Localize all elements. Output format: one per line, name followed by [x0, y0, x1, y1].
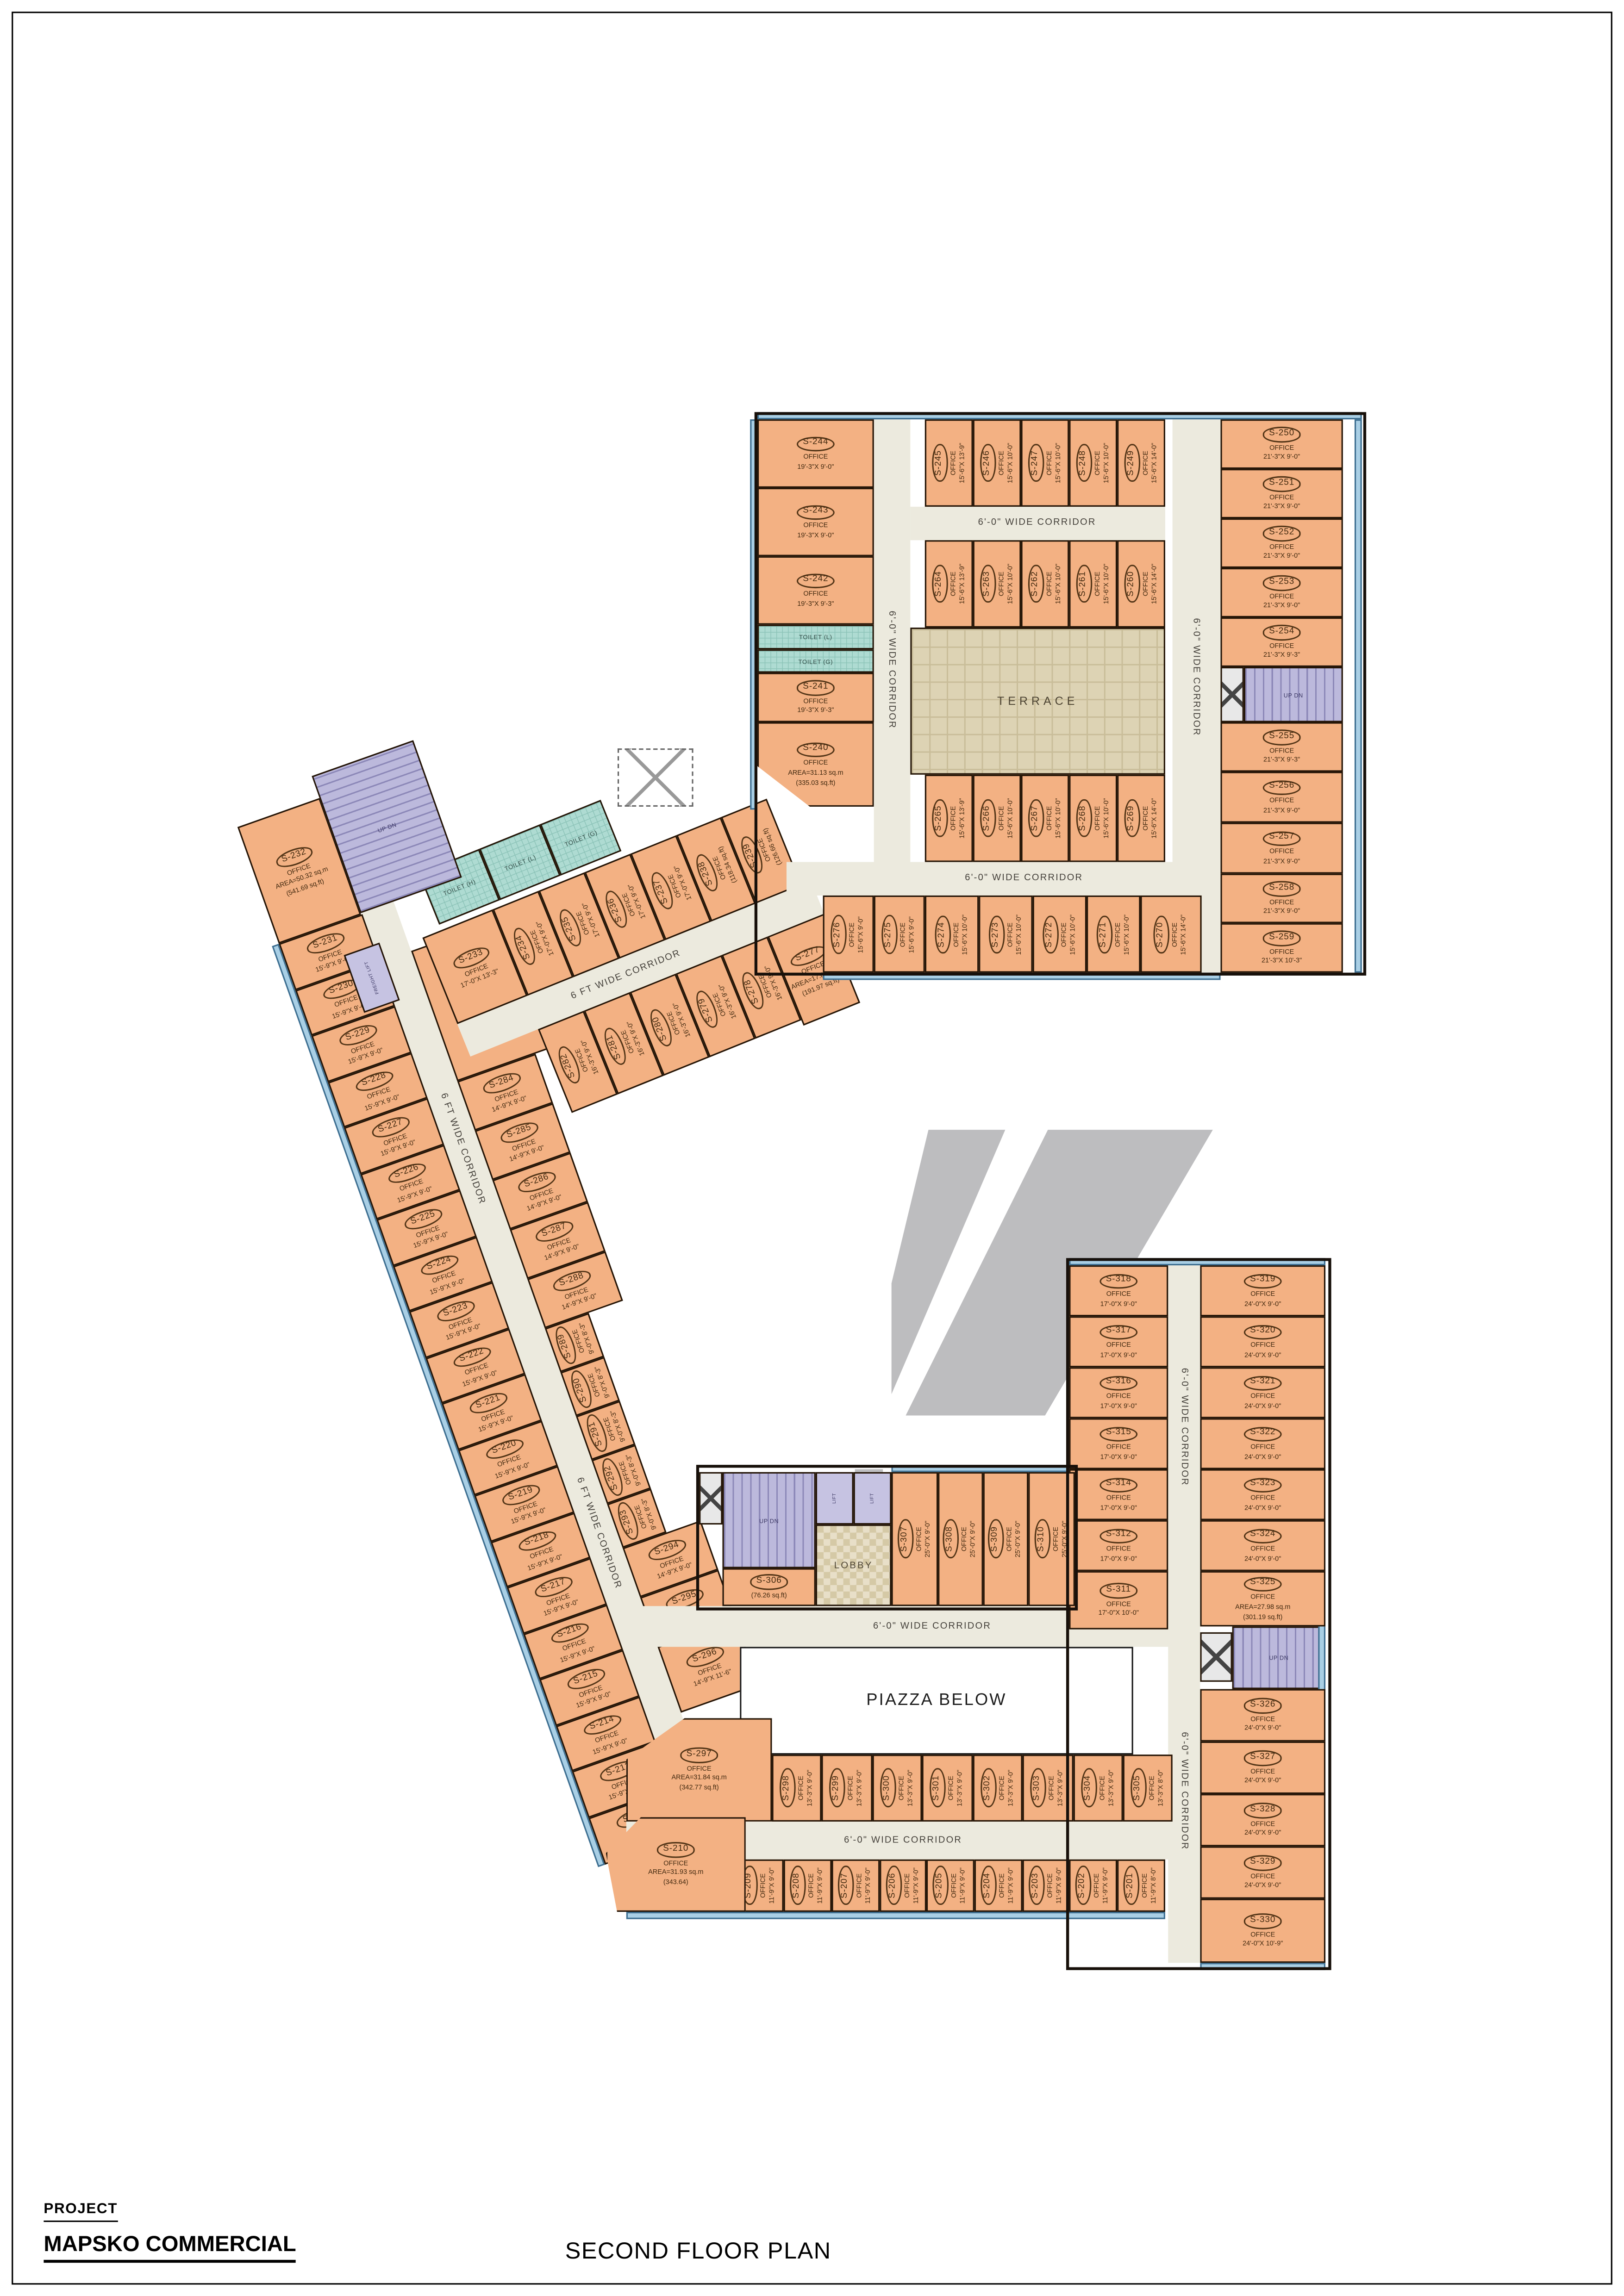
room-use: OFFICE — [948, 572, 956, 596]
room-use: OFFICE — [997, 1776, 1006, 1800]
room-s-247: S-247OFFICE15'-6"X 10'-0" — [1021, 419, 1069, 507]
room-use: OFFICE — [996, 451, 1005, 475]
room-number: S-301 — [930, 1769, 945, 1807]
room-s-301: S-301OFFICE13'-3"X 9'-0" — [922, 1755, 973, 1822]
room-dim: 13'-3"X 9'-0" — [806, 1770, 814, 1806]
room-use: OFFICE — [951, 922, 960, 946]
room-number: S-254 — [1262, 625, 1301, 640]
room-s-304: S-304OFFICE13'-3"X 9'-0" — [1074, 1755, 1123, 1822]
room-use: OFFICE — [1141, 572, 1149, 596]
toilet-l-west-label: TOILET (L) — [503, 852, 537, 871]
room-dim: 17'-0"X 9'-0" — [1100, 1504, 1137, 1512]
room-s-256: S-256OFFICE21'-3"X 9'-0" — [1221, 772, 1343, 822]
room-s-251: S-251OFFICE21'-3"X 9'-0" — [1221, 469, 1343, 518]
room-label-s-261: S-261OFFICE15'-6"X 10'-0" — [1076, 564, 1111, 604]
room-dim: 15'-6"X 13'-9" — [958, 443, 966, 483]
room-dim: 15'-6"X 9'-0" — [908, 916, 917, 952]
stair-southeast-label: UP DN — [1269, 1654, 1288, 1661]
room-label-s-262: S-262OFFICE15'-6"X 10'-0" — [1028, 564, 1062, 604]
room-s-252: S-252OFFICE21'-3"X 9'-0" — [1221, 518, 1343, 568]
room-dim: 11'-9"X 9'-0" — [817, 1867, 825, 1904]
toilet-g-north-label: TOILET (G) — [799, 658, 833, 665]
room-label-s-329: S-329OFFICE24'-0"X 9'-0" — [1243, 1855, 1282, 1890]
room-dim: 24'-0"X 9'-0" — [1244, 1777, 1281, 1785]
room-use: OFFICE — [848, 922, 856, 946]
room-s-318: S-318OFFICE17'-0"X 9'-0" — [1069, 1265, 1168, 1316]
room-use: OFFICE — [1106, 1392, 1131, 1400]
room-label-s-241: S-241OFFICE19'-3"X 9'-3" — [796, 680, 835, 715]
room-dim: 11'-9"X 9'-0" — [960, 1867, 968, 1904]
room-s-315: S-315OFFICE17'-0"X 9'-0" — [1069, 1418, 1168, 1469]
toilet-l-north-label: TOILET (L) — [799, 634, 832, 641]
room-number: S-261 — [1076, 565, 1091, 603]
room-dim: 24'-0"X 10'-9" — [1243, 1940, 1283, 1948]
room-label-s-238: S-238OFFICE(118.34 sq.ft) — [693, 845, 739, 894]
room-label-s-310: S-310OFFICE25'-0"X 9'-0" — [1034, 1520, 1069, 1558]
room-label-s-220: S-220OFFICE15'-9"X 9'-0" — [484, 1435, 532, 1481]
room-s-257: S-257OFFICE21'-3"X 9'-0" — [1221, 823, 1343, 874]
room-dim: 11'-9"X 8'-0" — [1150, 1867, 1159, 1904]
room-dim: 11'-9"X 9'-0" — [1007, 1867, 1016, 1904]
room-use: OFFICE — [1113, 922, 1121, 946]
room-dim: 25'-0"X 9'-0" — [970, 1521, 978, 1557]
room-dim: 11'-9"X 9'-0" — [1102, 1867, 1111, 1904]
room-label-s-303: S-303OFFICE13'-3"X 9'-0" — [1031, 1769, 1065, 1807]
room-label-s-306: S-306(76.26 sq.ft) — [750, 1574, 788, 1599]
room-label-s-208: S-208OFFICE11'-9"X 9'-0" — [790, 1867, 825, 1905]
room-s-259: S-259OFFICE21'-3"X 10'-3" — [1221, 923, 1343, 973]
glazing-south-east — [1200, 1963, 1325, 1970]
room-s-265: S-265OFFICE15'-6"X 13'-9" — [925, 775, 973, 862]
room-use: OFFICE — [1269, 592, 1294, 600]
room-s-205: S-205OFFICE11'-9"X 9'-0" — [926, 1860, 974, 1912]
room-label-s-287: S-287OFFICE14'-9"X 9'-0" — [534, 1218, 582, 1263]
room-number: S-265 — [931, 799, 947, 837]
glazing-west-upper — [750, 419, 757, 809]
room-number: S-255 — [1262, 729, 1301, 745]
room-label-s-234: S-234OFFICE17'-0"X 9'-0" — [510, 919, 556, 968]
room-number: S-252 — [1262, 526, 1301, 541]
lift-1: LIFT — [816, 1472, 854, 1524]
room-number: S-249 — [1124, 444, 1139, 482]
room-label-s-203: S-203OFFICE11'-9"X 9'-0" — [1028, 1867, 1063, 1905]
corridor-label: 6'-0" WIDE CORRIDOR — [1191, 618, 1201, 736]
room-number: S-325 — [1243, 1576, 1282, 1592]
room-dim: 24'-0"X 9'-0" — [1244, 1351, 1281, 1359]
room-label-s-255: S-255OFFICE21'-3"X 9'-3" — [1262, 729, 1301, 764]
room-label-s-245: S-245OFFICE15'-6"X 13'-9" — [931, 443, 966, 483]
room-dim: 15'-6"X 10'-0" — [1054, 443, 1062, 483]
room-label-s-252: S-252OFFICE21'-3"X 9'-0" — [1262, 526, 1301, 560]
room-number: S-203 — [1028, 1867, 1043, 1905]
room-use: OFFICE — [996, 572, 1005, 596]
stair-east: UP DN — [1244, 667, 1343, 722]
glazing-north-lower — [1069, 1258, 1325, 1265]
room-use: OFFICE — [1106, 1290, 1131, 1299]
room-number: S-298 — [779, 1769, 794, 1807]
corridor-label: 6'-0" WIDE CORRIDOR — [886, 611, 896, 729]
room-number: S-271 — [1096, 915, 1112, 953]
room-number: S-305 — [1130, 1769, 1145, 1807]
room-label-s-321: S-321OFFICE24'-0"X 9'-0" — [1243, 1375, 1282, 1410]
piazza-below: PIAZZA BELOW — [740, 1647, 1133, 1755]
room-label-s-226: S-226OFFICE15'-9"X 9'-0" — [386, 1159, 434, 1205]
room-number: S-260 — [1124, 565, 1139, 603]
room-s-302: S-302OFFICE13'-3"X 9'-0" — [973, 1755, 1023, 1822]
room-use: OFFICE — [897, 1776, 905, 1800]
room-label-s-280: S-280OFFICE16'-3"X 9'-0" — [646, 1000, 693, 1049]
room-s-275: S-275OFFICE15'-6"X 9'-0" — [874, 896, 925, 973]
room-use: OFFICE — [1269, 947, 1294, 956]
room-s-274: S-274OFFICE15'-6"X 10'-0" — [925, 896, 979, 973]
room-use: OFFICE — [796, 1776, 804, 1800]
room-dim: 25'-0"X 9'-0" — [1015, 1521, 1023, 1557]
room-label-s-231: S-231OFFICE15'-9"X 9'-0" — [305, 929, 353, 975]
room-label-s-224: S-224OFFICE15'-9"X 9'-0" — [419, 1251, 467, 1297]
room-s-248: S-248OFFICE15'-6"X 10'-0" — [1069, 419, 1117, 507]
room-dim: 15'-6"X 10'-0" — [1006, 798, 1014, 839]
room-number: S-304 — [1081, 1769, 1096, 1807]
room-number: S-311 — [1099, 1583, 1137, 1598]
room-dim: 11'-9"X 9'-0" — [768, 1867, 777, 1904]
room-use: OFFICE — [1106, 1494, 1131, 1502]
room-label-s-248: S-248OFFICE15'-6"X 10'-0" — [1076, 443, 1111, 483]
room-label-s-292: S-292OFFICE9'-0"X 8'-3" — [598, 1450, 644, 1499]
room-use: OFFICE — [1141, 806, 1149, 831]
room-number: S-314 — [1099, 1477, 1138, 1493]
room-number: S-263 — [980, 565, 995, 603]
room-dim: 17'-0"X 9'-0" — [1100, 1402, 1137, 1410]
room-dim: 19'-3"X 9'-0" — [797, 531, 834, 540]
room-number: S-297 — [680, 1748, 718, 1763]
toilet-l-north: TOILET (L) — [757, 625, 874, 649]
room-label-s-247: S-247OFFICE15'-6"X 10'-0" — [1028, 443, 1062, 483]
room-use: OFFICE — [1269, 493, 1294, 501]
room-use: OFFICE — [1250, 1443, 1275, 1451]
room-use: OFFICE — [803, 521, 828, 529]
room-label-s-288: S-288OFFICE14'-9"X 9'-0" — [551, 1267, 599, 1313]
room-number: S-302 — [980, 1769, 995, 1807]
room-dim: 15'-6"X 10'-0" — [1054, 564, 1062, 604]
corridor-label: 6'-0" WIDE CORRIDOR — [873, 1621, 991, 1631]
room-label-s-274: S-274OFFICE15'-6"X 10'-0" — [934, 914, 969, 954]
room-label-s-207: S-207OFFICE11'-9"X 9'-0" — [838, 1867, 873, 1905]
room-dim: 15'-6"X 10'-0" — [1123, 914, 1131, 954]
lobby: LOBBY — [816, 1524, 892, 1606]
room-s-299: S-299OFFICE13'-3"X 9'-0" — [821, 1755, 872, 1822]
room-s-246: S-246OFFICE15'-6"X 10'-0" — [973, 419, 1021, 507]
room-s-270: S-270OFFICE15'-6"X 14'-0" — [1140, 896, 1201, 973]
corridor-label: 6'-0" WIDE CORRIDOR — [1179, 1368, 1189, 1486]
room-label-s-315: S-315OFFICE17'-0"X 9'-0" — [1099, 1426, 1138, 1461]
room-label-s-268: S-268OFFICE15'-6"X 10'-0" — [1076, 798, 1111, 839]
room-dim: 24'-0"X 9'-0" — [1244, 1300, 1281, 1308]
room-label-s-254: S-254OFFICE21'-3"X 9'-3" — [1262, 625, 1301, 660]
room-number: S-202 — [1075, 1867, 1091, 1905]
terrace-label: TERRACE — [997, 695, 1078, 708]
room-dim: 15'-6"X 13'-9" — [958, 798, 966, 839]
room-number: S-248 — [1076, 444, 1091, 482]
room-number: S-262 — [1028, 565, 1043, 603]
room-use: OFFICE — [1059, 922, 1067, 946]
room-dim: AREA=31.13 sq.m — [788, 769, 843, 777]
room-number: S-322 — [1243, 1426, 1282, 1442]
room-label-s-221: S-221OFFICE15'-9"X 9'-0" — [468, 1389, 516, 1435]
corridor-label: 6'-0" WIDE CORRIDOR — [1179, 1732, 1189, 1850]
room-s-202: S-202OFFICE11'-9"X 9'-0" — [1069, 1860, 1117, 1912]
room-label-s-265: S-265OFFICE15'-6"X 13'-9" — [931, 798, 966, 839]
room-use: OFFICE — [1140, 1873, 1149, 1898]
room-label-s-232: S-232OFFICEAREA=50.32 sq.m(541.69 sq.ft) — [266, 840, 333, 901]
room-use: OFFICE — [1250, 1715, 1275, 1723]
room-label-s-286: S-286OFFICE14'-9"X 9'-0" — [516, 1168, 564, 1214]
room-use: OFFICE — [1250, 1819, 1275, 1828]
room-number: S-256 — [1262, 780, 1301, 795]
room-dim: 21'-3"X 9'-3" — [1263, 756, 1300, 765]
room-dim: 13'-3"X 9'-0" — [1007, 1770, 1015, 1806]
plan-scaler: ZRICKS .COM S-232OFFICEAREA=50.32 sq.m(5… — [0, 0, 1624, 2296]
room-use: OFFICE — [1269, 443, 1294, 452]
room-number: S-270 — [1154, 915, 1169, 953]
room-label-s-260: S-260OFFICE15'-6"X 14'-0" — [1124, 564, 1158, 604]
room-use: OFFICE — [1044, 572, 1053, 596]
room-label-s-216: S-216OFFICE15'-9"X 9'-0" — [549, 1619, 597, 1665]
stair-southeast: UP DN — [1232, 1626, 1325, 1689]
room-use: OFFICE — [1147, 1776, 1156, 1800]
room-s-298: S-298OFFICE13'-3"X 9'-0" — [772, 1755, 821, 1822]
room-dim: 15'-6"X 14'-0" — [1150, 443, 1159, 483]
room-number: S-274 — [934, 915, 949, 953]
room-number: S-327 — [1243, 1750, 1282, 1766]
room-s-208: S-208OFFICE11'-9"X 9'-0" — [784, 1860, 832, 1912]
room-label-s-330: S-330OFFICE24'-0"X 10'-9" — [1243, 1913, 1283, 1948]
room-number: S-240 — [796, 742, 835, 757]
room-label-s-302: S-302OFFICE13'-3"X 9'-0" — [980, 1769, 1015, 1807]
room-dim: 17'-0"X 10'-0" — [1099, 1609, 1139, 1618]
room-number: S-257 — [1262, 831, 1301, 846]
room-label-s-236: S-236OFFICE17'-0"X 9'-0" — [601, 882, 648, 931]
room-number: S-276 — [831, 915, 846, 953]
room-use: OFFICE — [1269, 796, 1294, 805]
room-number: S-250 — [1262, 427, 1301, 442]
glazing-north — [757, 412, 1362, 419]
room-use: OFFICE — [1106, 1341, 1131, 1350]
room-dim: 11'-9"X 9'-0" — [1055, 1867, 1063, 1904]
room-label-s-206: S-206OFFICE11'-9"X 9'-0" — [886, 1867, 920, 1905]
room-number: S-267 — [1028, 799, 1043, 837]
room-label-s-271: S-271OFFICE15'-6"X 10'-0" — [1096, 914, 1131, 954]
room-number: S-315 — [1099, 1426, 1138, 1442]
room-s-269: S-269OFFICE15'-6"X 14'-0" — [1117, 775, 1165, 862]
glazing-south — [626, 1912, 1165, 1919]
room-use: OFFICE — [1047, 1776, 1056, 1800]
room-label-s-267: S-267OFFICE15'-6"X 10'-0" — [1028, 798, 1062, 839]
room-use: OFFICE — [803, 697, 828, 705]
room-use: OFFICE — [996, 806, 1005, 831]
room-s-321: S-321OFFICE24'-0"X 9'-0" — [1200, 1367, 1325, 1418]
room-use: OFFICE — [948, 451, 956, 475]
room-dim: 24'-0"X 9'-0" — [1244, 1882, 1281, 1890]
room-use: OFFICE — [1170, 922, 1179, 946]
room-s-312: S-312OFFICE17'-0"X 9'-0" — [1069, 1520, 1168, 1571]
room-label-s-305: S-305OFFICE13'-3"X 8'-0" — [1130, 1769, 1165, 1807]
room-label-s-263: S-263OFFICE15'-6"X 10'-0" — [980, 564, 1014, 604]
room-dim: 13'-3"X 8'-0" — [1157, 1770, 1165, 1806]
room-dim: 11'-9"X 9'-0" — [912, 1867, 920, 1904]
corridor-label: 6'-0" WIDE CORRIDOR — [965, 873, 1083, 883]
room-label-s-246: S-246OFFICE15'-6"X 10'-0" — [980, 443, 1014, 483]
room-s-261: S-261OFFICE15'-6"X 10'-0" — [1069, 540, 1117, 628]
room-label-s-327: S-327OFFICE24'-0"X 9'-0" — [1243, 1750, 1282, 1785]
toilet-g-west-label: TOILET (G) — [563, 828, 598, 848]
room-dim: 15'-6"X 10'-0" — [1054, 798, 1062, 839]
room-s-241: S-241OFFICE19'-3"X 9'-3" — [757, 673, 874, 722]
room-label-s-209: S-209OFFICE11'-9"X 9'-0" — [742, 1867, 777, 1905]
room-label-s-217: S-217OFFICE15'-9"X 9'-0" — [533, 1573, 581, 1619]
room-dim: 15'-6"X 10'-0" — [961, 914, 969, 954]
room-label-s-273: S-273OFFICE15'-6"X 10'-0" — [988, 914, 1023, 954]
room-number: S-316 — [1099, 1375, 1138, 1391]
room-use: OFFICE — [855, 1873, 863, 1898]
room-s-267: S-267OFFICE15'-6"X 10'-0" — [1021, 775, 1069, 862]
room-label-s-233: S-233OFFICE17'-0"X 13'-3" — [450, 943, 500, 991]
room-number: S-308 — [943, 1520, 958, 1558]
room-number: S-299 — [830, 1769, 845, 1807]
room-label-s-291: S-291OFFICE9'-0"X 8'-3" — [583, 1406, 629, 1455]
room-label-s-300: S-300OFFICE13'-3"X 9'-0" — [880, 1769, 914, 1807]
room-dim: (76.26 sq.ft) — [751, 1591, 787, 1599]
room-dim: (335.03 sq.ft) — [796, 778, 835, 787]
room-number: S-251 — [1262, 476, 1301, 492]
room-dim: (301.19 sq.ft) — [1243, 1613, 1282, 1621]
room-dim: 24'-0"X 9'-0" — [1244, 1724, 1281, 1733]
room-dim: 17'-0"X 9'-0" — [1100, 1453, 1137, 1461]
room-s-201: S-201OFFICE11'-9"X 8'-0" — [1117, 1860, 1165, 1912]
room-label-s-294: S-294OFFICE14'-9"X 9'-0" — [646, 1536, 694, 1582]
corridor-label: 6'-0" WIDE CORRIDOR — [978, 517, 1096, 528]
room-use: OFFICE — [998, 1873, 1006, 1898]
room-dim: (342.77 sq.ft) — [680, 1784, 719, 1792]
room-label-s-281: S-281OFFICE16'-3"X 9'-0" — [600, 1019, 647, 1068]
room-s-322: S-322OFFICE24'-0"X 9'-0" — [1200, 1418, 1325, 1469]
room-use: OFFICE — [902, 1873, 911, 1898]
room-label-s-219: S-219OFFICE15'-9"X 9'-0" — [500, 1481, 549, 1527]
room-s-250: S-250OFFICE21'-3"X 9'-0" — [1221, 419, 1343, 469]
room-label-s-242: S-242OFFICE19'-3"X 9'-3" — [796, 573, 835, 608]
room-label-s-276: S-276OFFICE15'-6"X 9'-0" — [831, 915, 866, 953]
room-number: S-310 — [1034, 1520, 1049, 1558]
room-dim: 21'-3"X 9'-3" — [1263, 651, 1300, 660]
room-label-s-256: S-256OFFICE21'-3"X 9'-0" — [1262, 780, 1301, 815]
room-s-262: S-262OFFICE15'-6"X 10'-0" — [1021, 540, 1069, 628]
room-number: S-243 — [796, 504, 835, 520]
room-number: S-206 — [886, 1867, 901, 1905]
room-number: S-246 — [980, 444, 995, 482]
room-s-203: S-203OFFICE11'-9"X 9'-0" — [1023, 1860, 1069, 1912]
room-number: S-247 — [1028, 444, 1043, 482]
room-use: OFFICE — [1106, 1443, 1131, 1451]
room-number: S-208 — [790, 1867, 806, 1905]
room-dim: 24'-0"X 9'-0" — [1244, 1829, 1281, 1837]
room-label-s-308: S-308OFFICE25'-0"X 9'-0" — [943, 1520, 978, 1558]
room-number: S-317 — [1099, 1325, 1138, 1340]
room-dim: 25'-0"X 9'-0" — [924, 1521, 932, 1557]
room-dim: 24'-0"X 9'-0" — [1244, 1504, 1281, 1512]
room-use: OFFICE — [1093, 572, 1101, 596]
room-label-s-297: S-297OFFICEAREA=31.84 sq.m(342.77 sq.ft) — [671, 1748, 726, 1792]
room-s-242: S-242OFFICE19'-3"X 9'-3" — [757, 556, 874, 625]
lift-2: LIFT — [854, 1472, 892, 1524]
room-use: OFFICE — [1093, 1873, 1101, 1898]
room-s-300: S-300OFFICE13'-3"X 9'-0" — [873, 1755, 922, 1822]
room-s-254: S-254OFFICE21'-3"X 9'-3" — [1221, 617, 1343, 667]
room-use: OFFICE — [1250, 1341, 1275, 1350]
room-dim: 21'-3"X 9'-0" — [1263, 552, 1300, 560]
room-label-s-322: S-322OFFICE24'-0"X 9'-0" — [1243, 1426, 1282, 1461]
group-junction: TOILET (H)TOILET (L)TOILET (G)S-233OFFIC… — [422, 790, 874, 1154]
room-s-206: S-206OFFICE11'-9"X 9'-0" — [880, 1860, 926, 1912]
room-label-s-223: S-223OFFICE15'-9"X 9'-0" — [435, 1297, 483, 1343]
room-label-s-222: S-222OFFICE15'-9"X 9'-0" — [451, 1343, 500, 1389]
room-s-326: S-326OFFICE24'-0"X 9'-0" — [1200, 1689, 1325, 1742]
room-label-s-318: S-318OFFICE17'-0"X 9'-0" — [1099, 1273, 1138, 1308]
room-number: S-306 — [750, 1574, 788, 1590]
room-use: OFFICE — [1051, 1527, 1059, 1551]
room-dim: 13'-3"X 9'-0" — [906, 1770, 915, 1806]
corridor-label: 6'-0" WIDE CORRIDOR — [844, 1836, 962, 1846]
room-dim: 21'-3"X 9'-0" — [1263, 602, 1300, 610]
room-dim: 15'-6"X 10'-0" — [1102, 564, 1111, 604]
terrace: TERRACE — [910, 628, 1165, 775]
lift-1-label: LIFT — [831, 1493, 837, 1504]
room-number: S-242 — [796, 573, 835, 588]
room-s-306: S-306(76.26 sq.ft) — [723, 1568, 816, 1606]
room-use: OFFICE — [1269, 898, 1294, 906]
room-s-316: S-316OFFICE17'-0"X 9'-0" — [1069, 1367, 1168, 1418]
stair-east-label: UP DN — [1284, 691, 1303, 698]
room-label-s-239: S-239OFFICE(126.66 sq.ft) — [737, 826, 785, 876]
toilet-g-north: TOILET (G) — [757, 649, 874, 672]
room-dim: 13'-3"X 9'-0" — [856, 1770, 864, 1806]
shaft-southeast — [1200, 1632, 1232, 1682]
room-dim: 21'-3"X 9'-0" — [1263, 857, 1300, 865]
room-s-329: S-329OFFICE24'-0"X 9'-0" — [1200, 1846, 1325, 1898]
room-use: OFFICE — [1250, 1872, 1275, 1880]
shaft-lobby — [699, 1472, 722, 1524]
room-use: OFFICE — [759, 1873, 767, 1898]
room-number: S-324 — [1243, 1528, 1282, 1543]
room-dim: 17'-0"X 9'-0" — [1100, 1300, 1137, 1308]
room-dim: 15'-6"X 9'-0" — [857, 916, 866, 952]
room-use: OFFICE — [914, 1527, 922, 1551]
room-number: S-266 — [980, 799, 995, 837]
room-s-243: S-243OFFICE19'-3"X 9'-0" — [757, 488, 874, 556]
room-label-s-259: S-259OFFICE21'-3"X 10'-3" — [1262, 930, 1302, 965]
room-label-s-258: S-258OFFICE21'-3"X 9'-0" — [1262, 881, 1301, 916]
room-number: S-205 — [933, 1867, 948, 1905]
room-dim: 15'-6"X 10'-0" — [1015, 914, 1023, 954]
room-s-317: S-317OFFICE17'-0"X 9'-0" — [1069, 1316, 1168, 1367]
room-s-303: S-303OFFICE13'-3"X 9'-0" — [1023, 1755, 1074, 1822]
room-s-323: S-323OFFICE24'-0"X 9'-0" — [1200, 1469, 1325, 1520]
room-use: OFFICE — [1269, 542, 1294, 551]
room-label-s-227: S-227OFFICE15'-9"X 9'-0" — [370, 1113, 418, 1159]
room-use: OFFICE — [1250, 1930, 1275, 1938]
room-s-245: S-245OFFICE15'-6"X 13'-9" — [925, 419, 973, 507]
room-label-s-264: S-264OFFICE15'-6"X 13'-9" — [931, 564, 966, 604]
room-label-s-298: S-298OFFICE13'-3"X 9'-0" — [779, 1769, 814, 1807]
room-label-s-204: S-204OFFICE11'-9"X 9'-0" — [981, 1867, 1016, 1905]
